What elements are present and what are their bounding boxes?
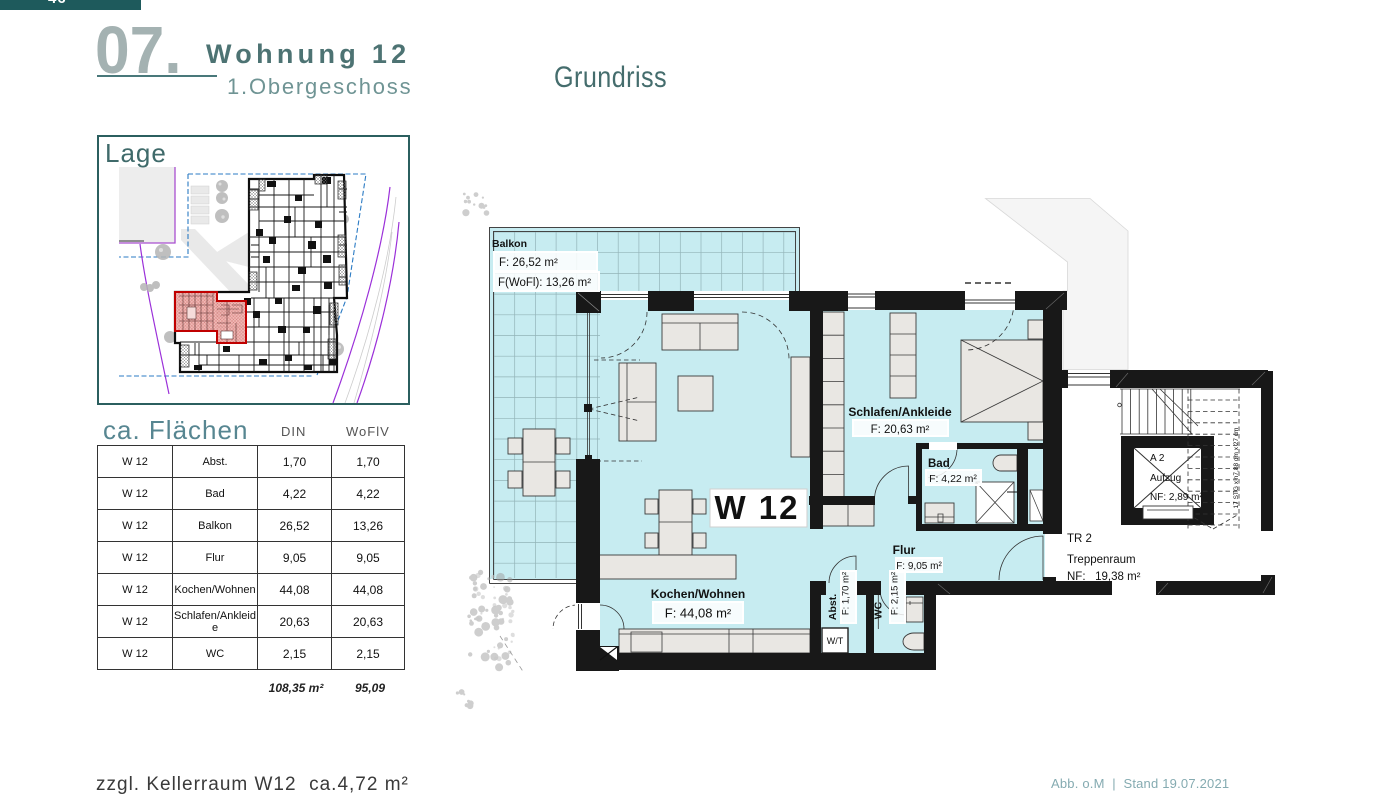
svg-text:F: 9,05 m²: F: 9,05 m²: [896, 561, 942, 572]
svg-text:F: 2,15 m²: F: 2,15 m²: [890, 572, 901, 615]
svg-text:F: 26,52 m²: F: 26,52 m²: [499, 257, 558, 269]
svg-text:A 2: A 2: [1150, 453, 1165, 464]
svg-text:Kochen/Wohnen: Kochen/Wohnen: [651, 587, 745, 601]
svg-text:F: 20,63 m²: F: 20,63 m²: [871, 424, 930, 436]
svg-text:Bad: Bad: [928, 458, 950, 470]
svg-text:17 STG x h7,88 dm x 27 cm: 17 STG x h7,88 dm x 27 cm: [1233, 428, 1240, 509]
svg-text:W/T: W/T: [827, 636, 844, 646]
svg-text:TR 2: TR 2: [1067, 533, 1092, 545]
svg-text:F: 44,08 m²: F: 44,08 m²: [665, 606, 732, 621]
svg-text:Balkon: Balkon: [492, 238, 527, 250]
svg-text:F: 4,22 m²: F: 4,22 m²: [929, 473, 977, 485]
svg-text:F: 1,70 m²: F: 1,70 m²: [841, 572, 852, 615]
svg-text:Aufzug: Aufzug: [1150, 473, 1181, 484]
svg-text:W 12: W 12: [714, 489, 799, 526]
svg-text:F(WoFl): 13,26 m²: F(WoFl): 13,26 m²: [498, 277, 591, 289]
svg-text:Schlafen/Ankleide: Schlafen/Ankleide: [848, 405, 952, 419]
svg-text:WC: WC: [873, 601, 885, 619]
svg-text:Abst.: Abst.: [827, 594, 839, 620]
svg-text:Treppenraum: Treppenraum: [1067, 554, 1136, 566]
svg-text:Flur: Flur: [893, 543, 916, 557]
svg-text:NF: 2,89 m²: NF: 2,89 m²: [1150, 492, 1203, 503]
svg-text:NF: 19,38 m²: NF: 19,38 m²: [1067, 571, 1141, 583]
